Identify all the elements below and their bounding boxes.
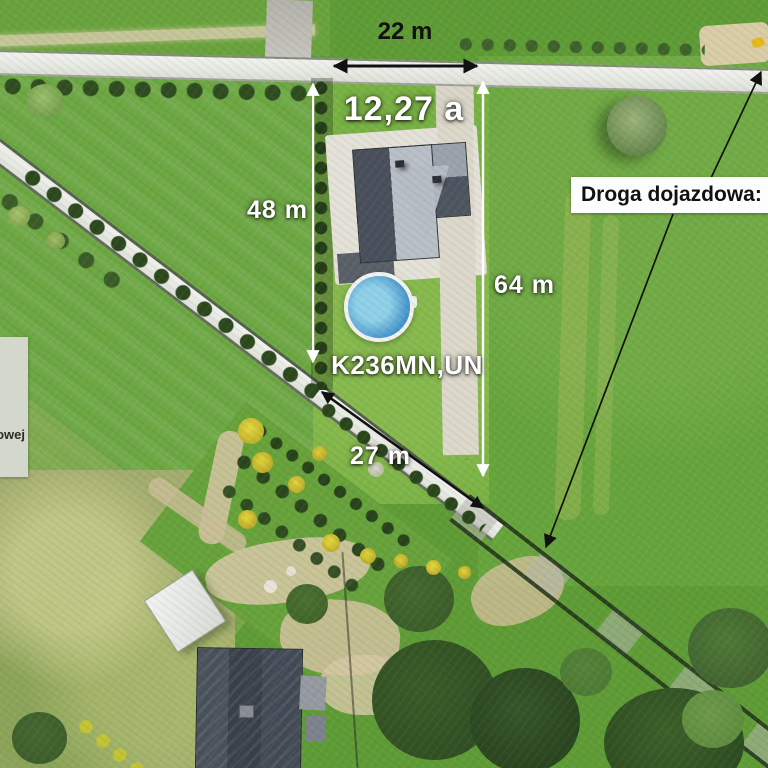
access-road-label: Droga dojazdowa: gmin (581, 183, 768, 206)
parcel-id-label: K236MN,UN (331, 352, 483, 379)
pointer-to-lower-road (546, 214, 673, 547)
dimension-label-right: 64 m (494, 272, 555, 298)
access-road-label-box: Droga dojazdowa: gmin (571, 177, 768, 213)
dimension-label-top: 22 m (378, 19, 433, 44)
dimension-label-bottom: 27 m (350, 443, 411, 469)
pointer-to-top-road (711, 72, 761, 178)
left-edge-partial-label: owej (0, 427, 25, 442)
left-edge-label-box: owej (0, 337, 28, 477)
area-label: 12,27 a (344, 92, 464, 128)
dimension-label-left: 48 m (240, 197, 308, 223)
aerial-photo: 22 m 12,27 a 48 m 64 m K236MN,UN 27 m Dr… (0, 0, 768, 768)
